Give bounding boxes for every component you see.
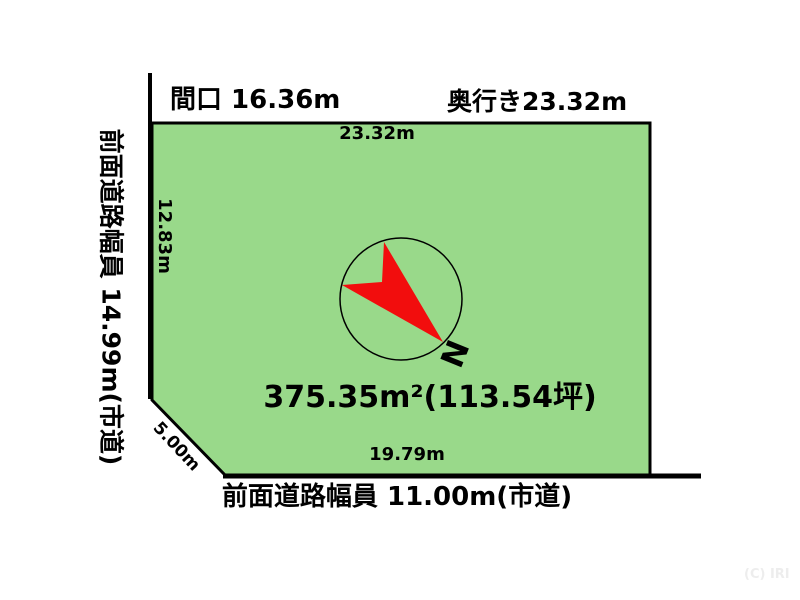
land-plot-diagram: 間口 16.36m 奥行き23.32m 23.32m 12.83m 前面道路幅員…	[0, 0, 800, 600]
copyright-watermark: (C) IRI	[744, 568, 790, 581]
frontage-dimension-label: 間口 16.36m	[170, 87, 340, 113]
left-edge-dimension: 12.83m	[155, 198, 173, 274]
bottom-edge-dimension: 19.79m	[369, 446, 445, 464]
depth-dimension-label: 奥行き23.32m	[447, 89, 627, 114]
left-road-width-label: 前面道路幅員 14.99m(市道)	[99, 129, 124, 466]
land-area-label: 375.35m²(113.54坪)	[263, 383, 596, 413]
top-edge-dimension: 23.32m	[339, 125, 415, 143]
bottom-road-width-label: 前面道路幅員 11.00m(市道)	[222, 484, 572, 510]
